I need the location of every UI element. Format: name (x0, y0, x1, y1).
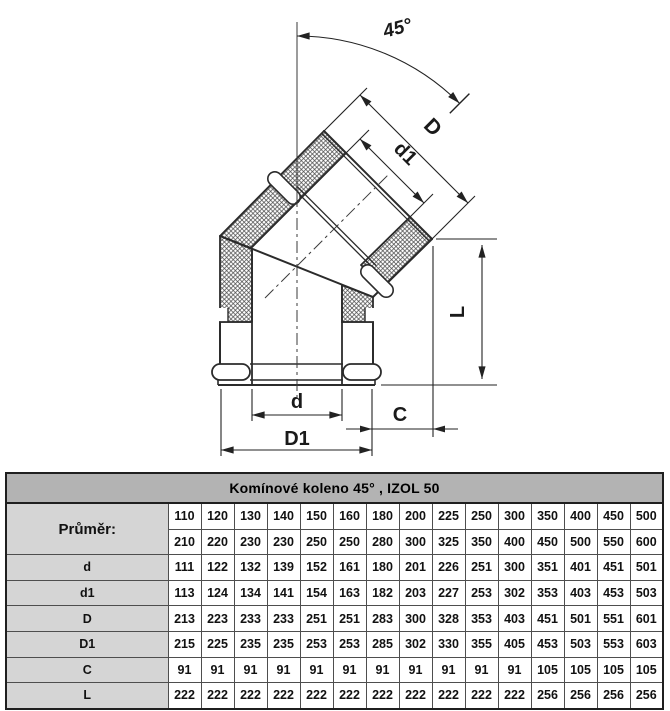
bead-left (212, 364, 250, 380)
dim-cell: 353 (465, 606, 498, 632)
dim-cell: 124 (201, 580, 234, 606)
dim-cell: 105 (531, 657, 564, 683)
dim-cell: 256 (531, 683, 564, 709)
dim-cell: 550 (597, 529, 630, 555)
dim-cell: 501 (630, 555, 663, 581)
dim-cell: 223 (201, 606, 234, 632)
dim-cell: 222 (201, 683, 234, 709)
dim-cell: 120 (201, 503, 234, 529)
dim-cell: 91 (300, 657, 333, 683)
dim-cell: 213 (168, 606, 201, 632)
dim-cell: 401 (564, 555, 597, 581)
dim-cell: 233 (234, 606, 267, 632)
dim-cell: 603 (630, 631, 663, 657)
dim-cell: 134 (234, 580, 267, 606)
dim-cell: 105 (630, 657, 663, 683)
dim-cell: 201 (399, 555, 432, 581)
dim-cell: 235 (267, 631, 300, 657)
dim-cell: 180 (366, 503, 399, 529)
dim-cell: 210 (168, 529, 201, 555)
dim-cell: 222 (366, 683, 399, 709)
dim-cell: 235 (234, 631, 267, 657)
dim-cell: 200 (399, 503, 432, 529)
dim-cell: 91 (366, 657, 399, 683)
dim-cell: 253 (333, 631, 366, 657)
dim-cell: 226 (432, 555, 465, 581)
dim-cell: 450 (597, 503, 630, 529)
dim-cell: 400 (498, 529, 531, 555)
dim-cell: 403 (498, 606, 531, 632)
table-row: d111122132139152161180201226251300351401… (6, 555, 663, 581)
dim-cell: 300 (399, 529, 432, 555)
dim-label-L: L (447, 306, 469, 318)
dim-cell: 285 (366, 631, 399, 657)
dim-cell: 160 (333, 503, 366, 529)
dim-cell: 330 (432, 631, 465, 657)
dim-cell: 91 (498, 657, 531, 683)
dim-cell: 161 (333, 555, 366, 581)
dim-cell: 91 (201, 657, 234, 683)
dim-cell: 325 (432, 529, 465, 555)
dim-cell: 355 (465, 631, 498, 657)
dim-cell: 140 (267, 503, 300, 529)
dim-cell: 222 (432, 683, 465, 709)
dim-cell: 251 (300, 606, 333, 632)
dim-cell: 503 (630, 580, 663, 606)
dim-cell: 227 (432, 580, 465, 606)
dim-cell: 182 (366, 580, 399, 606)
dim-cell: 553 (597, 631, 630, 657)
dim-cell: 220 (201, 529, 234, 555)
dim-cell: 251 (333, 606, 366, 632)
dim-cell: 91 (168, 657, 201, 683)
dim-cell: 501 (564, 606, 597, 632)
dim-label-d1: d1 (389, 138, 421, 170)
dim-cell: 500 (564, 529, 597, 555)
dim-cell: 222 (234, 683, 267, 709)
dim-cell: 453 (597, 580, 630, 606)
table-row: C9191919191919191919191105105105105 (6, 657, 663, 683)
dim-cell: 353 (531, 580, 564, 606)
dim-cell: 152 (300, 555, 333, 581)
dim-cell: 222 (300, 683, 333, 709)
dim-cell: 222 (267, 683, 300, 709)
dim-cell: 600 (630, 529, 663, 555)
dim-cell: 141 (267, 580, 300, 606)
bead-right (343, 364, 381, 380)
dim-cell: 180 (366, 555, 399, 581)
dim-cell: 163 (333, 580, 366, 606)
dim-cell: 215 (168, 631, 201, 657)
row-label: D (6, 606, 168, 632)
dim-cell: 91 (432, 657, 465, 683)
dim-cell: 91 (465, 657, 498, 683)
angle-arc (297, 36, 460, 103)
dim-label-C: C (393, 404, 407, 426)
dim-cell: 111 (168, 555, 201, 581)
dim-cell: 503 (564, 631, 597, 657)
page: { "drawing": { "labels": { "angle": "45°… (0, 0, 670, 711)
dim-cell: 222 (168, 683, 201, 709)
dimension-table: Komínové koleno 45° , IZOL 50 Průměr:110… (5, 472, 664, 710)
dim-cell: 105 (564, 657, 597, 683)
row-label: d1 (6, 580, 168, 606)
dim-cell: 405 (498, 631, 531, 657)
dim-cell: 403 (564, 580, 597, 606)
dim-cell: 400 (564, 503, 597, 529)
dim-cell: 113 (168, 580, 201, 606)
dim-cell: 225 (432, 503, 465, 529)
dim-cell: 91 (267, 657, 300, 683)
table-body: Průměr:110120130140150160180200225250300… (6, 503, 663, 709)
row-label: D1 (6, 631, 168, 657)
dim-cell: 300 (498, 555, 531, 581)
dim-cell: 250 (300, 529, 333, 555)
table-row: D213223233233251251283300328353403451501… (6, 606, 663, 632)
dim-cell: 222 (333, 683, 366, 709)
dim-cell: 450 (531, 529, 564, 555)
dim-cell: 350 (531, 503, 564, 529)
dim-cell: 351 (531, 555, 564, 581)
dim-cell: 230 (234, 529, 267, 555)
dim-cell: 256 (630, 683, 663, 709)
dim-cell: 222 (465, 683, 498, 709)
dim-cell: 251 (465, 555, 498, 581)
dim-cell: 225 (201, 631, 234, 657)
row-label: Průměr: (6, 503, 168, 555)
dim-cell: 122 (201, 555, 234, 581)
dim-cell: 601 (630, 606, 663, 632)
dim-cell: 453 (531, 631, 564, 657)
technical-drawing: 45° D d1 L C d D1 (0, 0, 670, 472)
bottom-socket (212, 322, 381, 385)
table-row: d111312413414115416318220322725330235340… (6, 580, 663, 606)
dim-cell: 328 (432, 606, 465, 632)
dim-cell: 350 (465, 529, 498, 555)
dim-label-D: D (419, 114, 446, 141)
dim-cell: 451 (531, 606, 564, 632)
dim-cell: 253 (465, 580, 498, 606)
dim-cell: 154 (300, 580, 333, 606)
dim-label-D1: D1 (284, 428, 310, 450)
table-title: Komínové koleno 45° , IZOL 50 (6, 473, 663, 503)
dim-cell: 150 (300, 503, 333, 529)
dim-cell: 91 (234, 657, 267, 683)
dim-label-d: d (291, 391, 303, 413)
dim-cell: 222 (498, 683, 531, 709)
dim-cell: 256 (564, 683, 597, 709)
dim-cell: 91 (333, 657, 366, 683)
dim-cell: 233 (267, 606, 300, 632)
table-row: D121522523523525325328530233035540545350… (6, 631, 663, 657)
dim-cell: 203 (399, 580, 432, 606)
dim-cell: 105 (597, 657, 630, 683)
dim-cell: 253 (300, 631, 333, 657)
dim-cell: 300 (399, 606, 432, 632)
dim-cell: 130 (234, 503, 267, 529)
dim-label-angle: 45° (380, 15, 415, 43)
dim-cell: 280 (366, 529, 399, 555)
dim-cell: 300 (498, 503, 531, 529)
dim-cell: 250 (465, 503, 498, 529)
dim-cell: 302 (399, 631, 432, 657)
dim-cell: 500 (630, 503, 663, 529)
row-label: C (6, 657, 168, 683)
dim-cell: 139 (267, 555, 300, 581)
dim-cell: 551 (597, 606, 630, 632)
dim-cell: 451 (597, 555, 630, 581)
row-label: L (6, 683, 168, 709)
dim-cell: 222 (399, 683, 432, 709)
dim-cell: 256 (597, 683, 630, 709)
dim-cell: 250 (333, 529, 366, 555)
dim-cell: 230 (267, 529, 300, 555)
dim-cell: 302 (498, 580, 531, 606)
dim-cell: 283 (366, 606, 399, 632)
dim-cell: 91 (399, 657, 432, 683)
dimensions (221, 36, 497, 456)
row-label: d (6, 555, 168, 581)
dim-cell: 132 (234, 555, 267, 581)
dim-cell: 110 (168, 503, 201, 529)
table-row: L222222222222222222222222222222222256256… (6, 683, 663, 709)
table-row: Průměr:110120130140150160180200225250300… (6, 503, 663, 529)
